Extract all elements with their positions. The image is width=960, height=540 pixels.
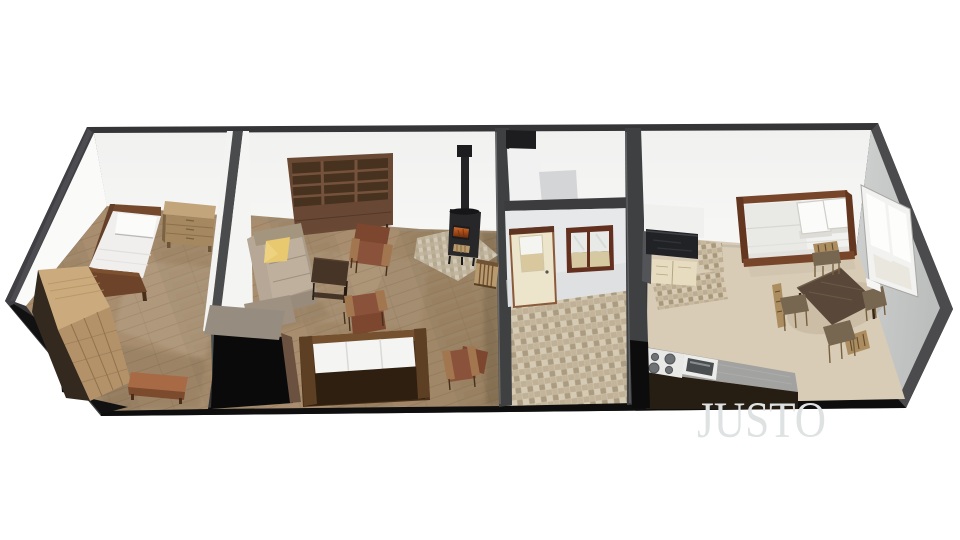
svg-text:JUSTO: JUSTO <box>697 393 826 449</box>
